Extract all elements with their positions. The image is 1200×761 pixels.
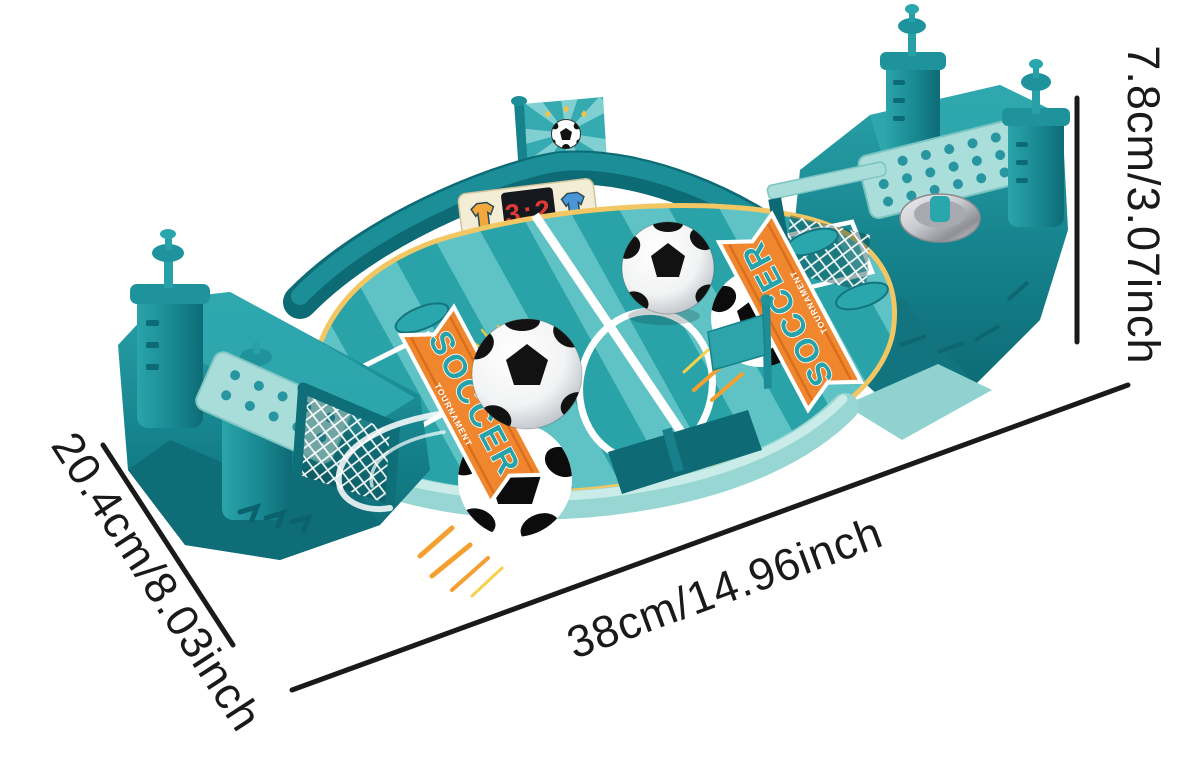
pennant-pole-cap [761, 295, 772, 306]
tabletop-soccer-illustration: 3:2 [0, 0, 1200, 761]
player-knob-back-right [898, 4, 926, 56]
height-dimension-label: 7.8cm/3.07inch [1118, 45, 1169, 364]
tower-back-right [880, 4, 946, 153]
silver-ball-bowl [900, 194, 980, 242]
product-photo: 3:2 [0, 0, 1200, 761]
tower-front-right [1002, 59, 1070, 227]
player-knob-back-left [152, 229, 184, 288]
